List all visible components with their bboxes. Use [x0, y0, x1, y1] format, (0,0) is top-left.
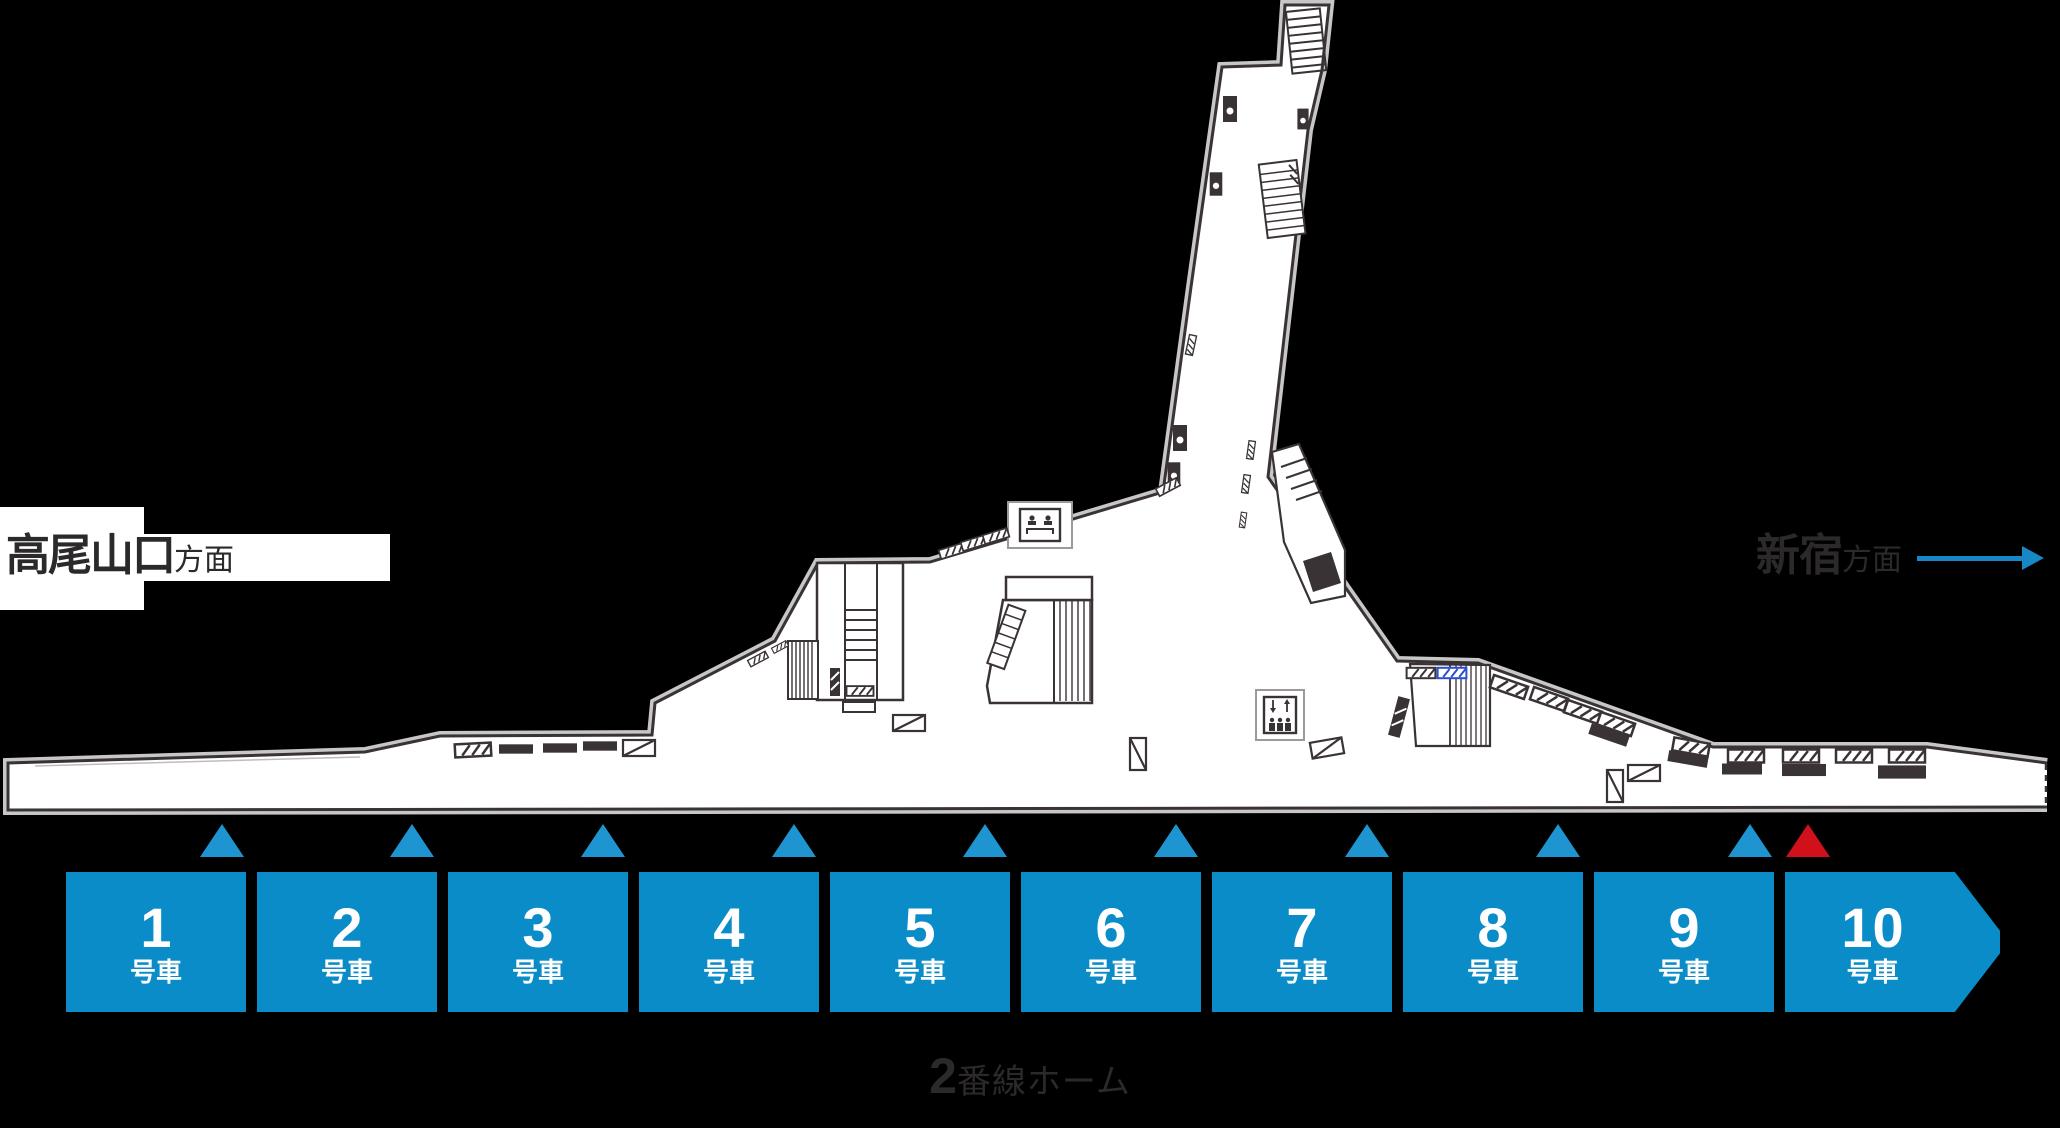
- door-marker-blue: [1536, 824, 1580, 857]
- platform-map: 高尾山口方面 新宿方面 1 号車 2 号車 3 号車 4 号車 5 号車: [0, 0, 2060, 1128]
- direction-right-suffix: 方面: [1842, 536, 1902, 586]
- direction-left-suffix: 方面: [174, 536, 234, 586]
- car-label: 号車: [130, 959, 182, 985]
- door-marker-blue: [581, 824, 625, 857]
- direction-right-station: 新宿: [1756, 531, 1842, 581]
- door-marker-red: [1786, 824, 1830, 857]
- car-number: 6: [1095, 900, 1126, 956]
- car-number: 9: [1668, 900, 1699, 956]
- platform-number: 2: [929, 1050, 957, 1102]
- car-box: 7 号車: [1212, 872, 1392, 1012]
- car-label: 号車: [894, 959, 946, 985]
- car-box: 3 号車: [448, 872, 628, 1012]
- door-marker-blue: [1728, 824, 1772, 857]
- platform-suffix: 番線ホーム: [957, 1056, 1131, 1108]
- hatched-sign-blue-icon: [1438, 668, 1467, 678]
- direction-right-label: 新宿方面: [1756, 531, 1902, 581]
- car-box: 6 号車: [1021, 872, 1201, 1012]
- car-box: 4 号車: [639, 872, 819, 1012]
- car-box: 8 号車: [1403, 872, 1583, 1012]
- car-label: 号車: [512, 959, 564, 985]
- car-number: 2: [331, 900, 362, 956]
- door-marker-blue: [1345, 824, 1389, 857]
- waiting-room-icon: [1008, 502, 1072, 548]
- door-marker-blue: [390, 824, 434, 857]
- door-marker-blue: [1154, 824, 1198, 857]
- car-box: 5 号車: [830, 872, 1010, 1012]
- car-label: 号車: [703, 959, 755, 985]
- car-number: 4: [713, 900, 744, 956]
- door-marker-blue: [200, 824, 244, 857]
- direction-left-label: 高尾山口方面: [6, 531, 234, 581]
- car-label: 号車: [1085, 959, 1137, 985]
- car-number: 8: [1477, 900, 1508, 956]
- car-number: 7: [1286, 900, 1317, 956]
- corridor-escalator-icon: [1259, 160, 1306, 238]
- car-label: 号車: [1846, 959, 1898, 985]
- door-marker-blue: [963, 824, 1007, 857]
- car-label: 号車: [1467, 959, 1519, 985]
- car-label: 号車: [321, 959, 373, 985]
- car-number: 1: [140, 900, 171, 956]
- car-box: 1 号車: [66, 872, 246, 1012]
- direction-left-station: 高尾山口: [6, 531, 174, 581]
- left-escalator-icon: [788, 641, 818, 699]
- car-box: 2 号車: [257, 872, 437, 1012]
- door-marker-blue: [772, 824, 816, 857]
- car-box: 9 号車: [1594, 872, 1774, 1012]
- car-number: 3: [522, 900, 553, 956]
- elevator-icon: [1256, 690, 1304, 740]
- direction-arrow-icon: [2022, 546, 2044, 570]
- car-box: 10 号車: [1785, 872, 2000, 1012]
- car-number: 10: [1841, 900, 1903, 956]
- direction-arrow-line: [1917, 556, 2027, 561]
- car-label: 号車: [1658, 959, 1710, 985]
- hatched-sign-icon: [847, 686, 874, 696]
- car-label: 号車: [1276, 959, 1328, 985]
- platform-number-label: 2番線ホーム: [0, 1050, 2060, 1108]
- car-number: 5: [904, 900, 935, 956]
